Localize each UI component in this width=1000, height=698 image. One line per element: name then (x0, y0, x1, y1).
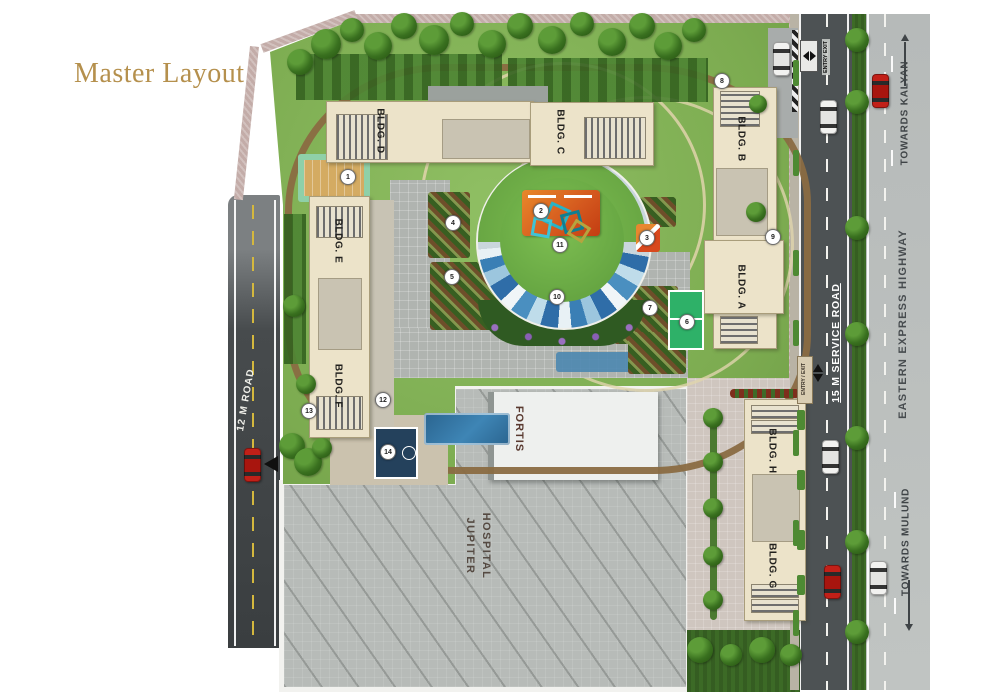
walk-ef-east (368, 200, 394, 436)
master-layout-plan: Master Layout FORTIS JUPITER HOSPITAL (0, 0, 1000, 698)
north-arrow-head (901, 34, 909, 41)
building-f-label: BLDG. F (333, 364, 344, 408)
basketball-center-circle (402, 446, 416, 460)
building-d-label: BLDG. D (375, 108, 386, 153)
gh-tree-line (710, 408, 717, 620)
entry-arrow-right-icon (810, 51, 816, 61)
south-arrow-line (908, 580, 910, 624)
page-title: Master Layout (74, 58, 245, 90)
west-road-center-line (252, 205, 254, 645)
gh-bottom-green (687, 630, 800, 692)
highway-edge-line (867, 14, 869, 690)
entry-east-arrows (813, 364, 823, 382)
entry-arrow-left-icon (803, 51, 809, 61)
building-a-label: BLDG. A (736, 265, 747, 310)
hospital-label-line1: JUPITER (464, 518, 476, 575)
service-road-label: 15 M SERVICE ROAD (830, 283, 842, 403)
seating-feature (636, 224, 660, 252)
entry-east-label: ENTRY / EXIT (801, 363, 807, 395)
tennis-court (668, 290, 704, 350)
north-arrow-line (904, 42, 906, 86)
west-entry-arrow (264, 456, 278, 472)
kids-court (304, 160, 364, 196)
building-c-label: BLDG. C (555, 109, 566, 154)
hospital-label-line2: HOSPITAL (480, 513, 492, 580)
flower-bed-nw (428, 192, 470, 258)
gh-flower-hedge (730, 389, 800, 398)
eastern-express-highway (862, 14, 930, 690)
service-road-dashes (826, 14, 828, 690)
highway-label: EASTERN EXPRESS HIGHWAY (897, 229, 909, 419)
pool-south (424, 413, 510, 445)
wall-top (352, 14, 798, 23)
entry-northeast-box (800, 40, 818, 72)
building-h-label: BLDG. H (767, 428, 778, 473)
entry-northeast-label: ENTRY EXIT (822, 39, 830, 75)
building-g-label: BLDG. G (767, 543, 778, 589)
play-equipment-3 (530, 216, 552, 238)
northeast-curb-hatch (792, 30, 798, 112)
south-arrow-head (905, 624, 913, 631)
highway-lane-dashes (884, 14, 886, 690)
building-b-label: BLDG. B (736, 116, 747, 161)
building-e-label: BLDG. E (333, 219, 344, 264)
